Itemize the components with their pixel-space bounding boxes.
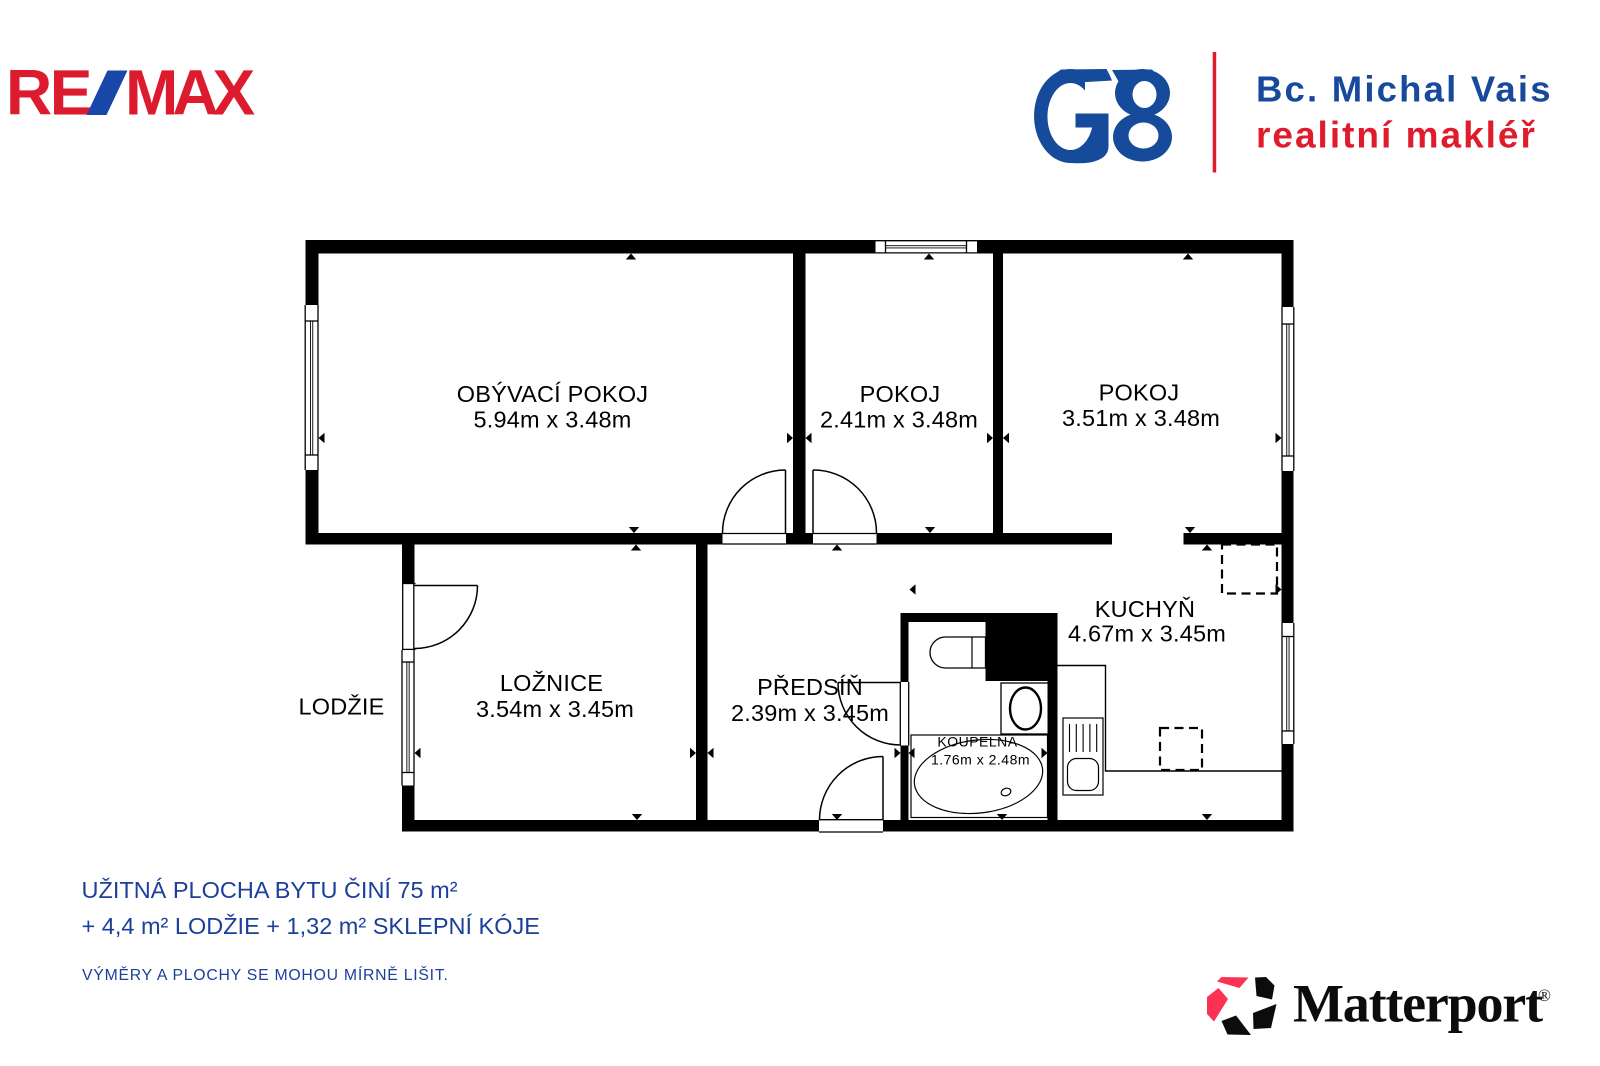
svg-text:4.67m x 3.45m: 4.67m x 3.45m: [1068, 621, 1226, 647]
svg-text:+ 4,4 m² LODŽIE + 1,32 m² SKLE: + 4,4 m² LODŽIE + 1,32 m² SKLEPNÍ KÓJE: [82, 913, 540, 939]
svg-text:LOŽNICE: LOŽNICE: [500, 670, 603, 696]
svg-text:1.76m x 2.48m: 1.76m x 2.48m: [931, 752, 1030, 768]
svg-text:OBÝVACÍ POKOJ: OBÝVACÍ POKOJ: [457, 381, 649, 407]
svg-text:PŘEDSÍŇ: PŘEDSÍŇ: [757, 674, 863, 700]
svg-text:UŽITNÁ PLOCHA BYTU ČINÍ 75 m²: UŽITNÁ PLOCHA BYTU ČINÍ 75 m²: [82, 876, 458, 903]
svg-text:Matterport: Matterport: [1293, 974, 1543, 1034]
svg-text:POKOJ: POKOJ: [860, 381, 941, 407]
svg-text:POKOJ: POKOJ: [1099, 380, 1180, 406]
svg-text:®: ®: [1538, 986, 1551, 1005]
svg-text:2.39m x 3.45m: 2.39m x 3.45m: [731, 700, 889, 726]
svg-text:KUCHYŇ: KUCHYŇ: [1095, 596, 1195, 622]
svg-text:LODŽIE: LODŽIE: [298, 694, 384, 720]
svg-text:5.94m x 3.48m: 5.94m x 3.48m: [473, 407, 631, 433]
svg-text:RE: RE: [6, 57, 91, 129]
svg-text:realitní makléř: realitní makléř: [1256, 115, 1537, 156]
svg-text:3.54m x 3.45m: 3.54m x 3.45m: [476, 696, 634, 722]
svg-text:VÝMĚRY A PLOCHY SE MOHOU MÍRNĚ: VÝMĚRY A PLOCHY SE MOHOU MÍRNĚ LIŠIT.: [82, 965, 449, 984]
svg-text:MAX: MAX: [125, 57, 256, 129]
svg-text:3.51m x 3.48m: 3.51m x 3.48m: [1062, 405, 1220, 431]
svg-text:Bc. Michal Vais: Bc. Michal Vais: [1256, 69, 1553, 110]
svg-text:KOUPELNA: KOUPELNA: [937, 734, 1017, 750]
svg-text:2.41m x 3.48m: 2.41m x 3.48m: [820, 407, 978, 433]
